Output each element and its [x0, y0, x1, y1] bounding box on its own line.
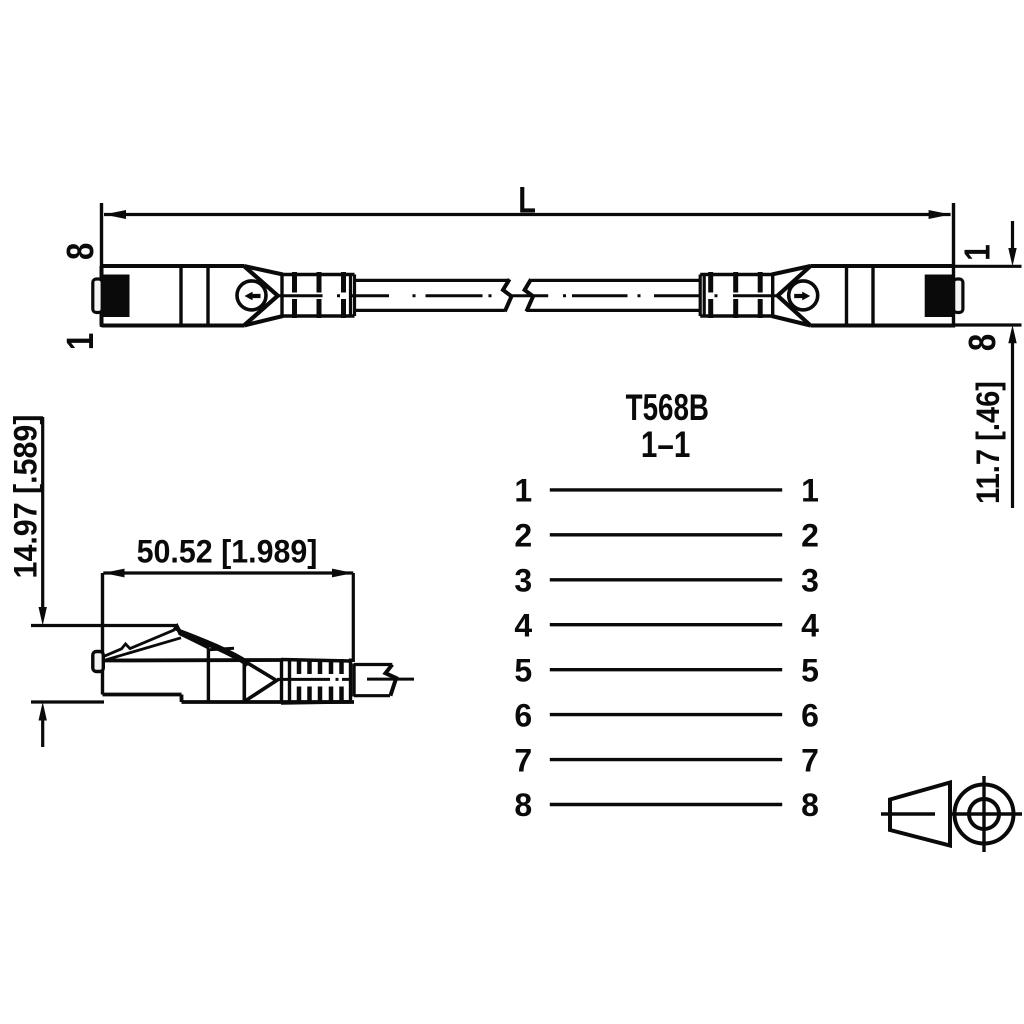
svg-text:5: 5	[801, 652, 819, 688]
svg-text:8: 8	[801, 787, 819, 823]
svg-text:11.7 [.46]: 11.7 [.46]	[971, 381, 1007, 504]
svg-text:14.97 [.589]: 14.97 [.589]	[8, 415, 44, 579]
svg-text:L: L	[518, 180, 536, 221]
svg-text:8: 8	[60, 243, 102, 260]
svg-text:1: 1	[514, 473, 532, 509]
svg-text:1: 1	[957, 244, 997, 260]
svg-text:1: 1	[60, 333, 102, 350]
svg-text:1–1: 1–1	[641, 425, 690, 466]
svg-text:3: 3	[801, 563, 819, 599]
svg-text:6: 6	[801, 697, 819, 733]
svg-text:2: 2	[801, 518, 819, 554]
svg-text:3: 3	[514, 563, 532, 599]
svg-text:8: 8	[514, 787, 532, 823]
svg-text:8: 8	[962, 334, 1004, 351]
svg-text:6: 6	[514, 697, 532, 733]
svg-text:1: 1	[801, 473, 819, 509]
svg-text:T568B: T568B	[626, 386, 709, 428]
svg-text:5: 5	[514, 652, 532, 688]
svg-text:7: 7	[801, 742, 819, 778]
svg-text:2: 2	[514, 518, 532, 554]
svg-text:4: 4	[801, 607, 819, 643]
svg-text:50.52 [1.989]: 50.52 [1.989]	[137, 534, 318, 570]
svg-text:7: 7	[514, 742, 532, 778]
svg-text:4: 4	[514, 607, 532, 643]
